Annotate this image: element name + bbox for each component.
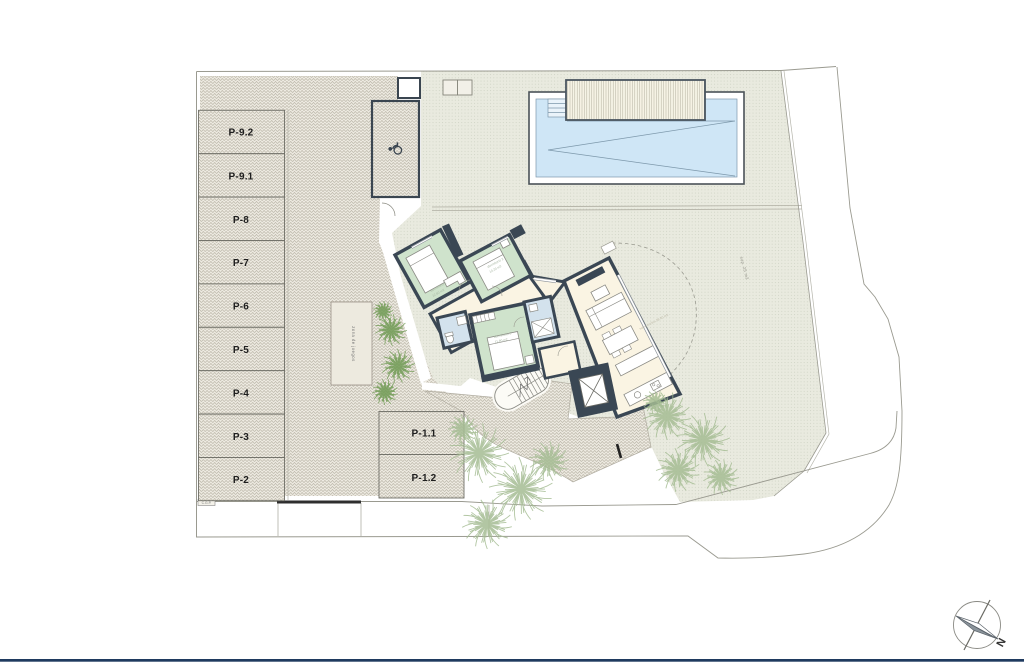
svg-text:P-6: P-6 — [233, 302, 249, 313]
svg-text:C.G.P.: C.G.P. — [202, 501, 212, 505]
svg-text:P-2: P-2 — [233, 475, 249, 486]
svg-text:P-8: P-8 — [233, 215, 249, 226]
svg-text:P-9.1: P-9.1 — [229, 171, 254, 182]
svg-text:P-9.2: P-9.2 — [229, 128, 254, 139]
svg-text:P-7: P-7 — [233, 258, 249, 269]
svg-text:P-4: P-4 — [233, 388, 249, 399]
svg-text:P-3: P-3 — [233, 432, 249, 443]
svg-text:P-1.1: P-1.1 — [412, 429, 437, 440]
svg-text:P-1.2: P-1.2 — [412, 473, 437, 484]
svg-text:zona de juegos: zona de juegos — [351, 326, 356, 361]
svg-text:P-5: P-5 — [233, 345, 249, 356]
